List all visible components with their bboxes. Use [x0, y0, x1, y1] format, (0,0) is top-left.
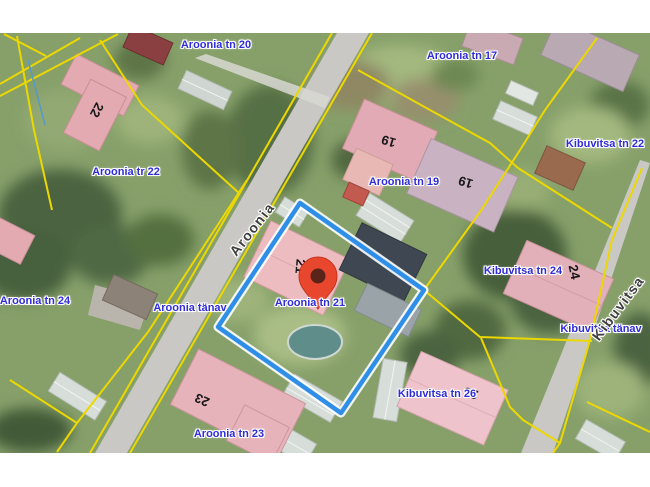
map-canvas[interactable]: 22 19 19 21 24 23 26 [0, 33, 650, 453]
marker-hole [311, 269, 326, 284]
swimming-pool [288, 325, 342, 359]
map-screenshot: 22 19 19 21 24 23 26 Aroonia tn 20 Aroon… [0, 0, 650, 487]
